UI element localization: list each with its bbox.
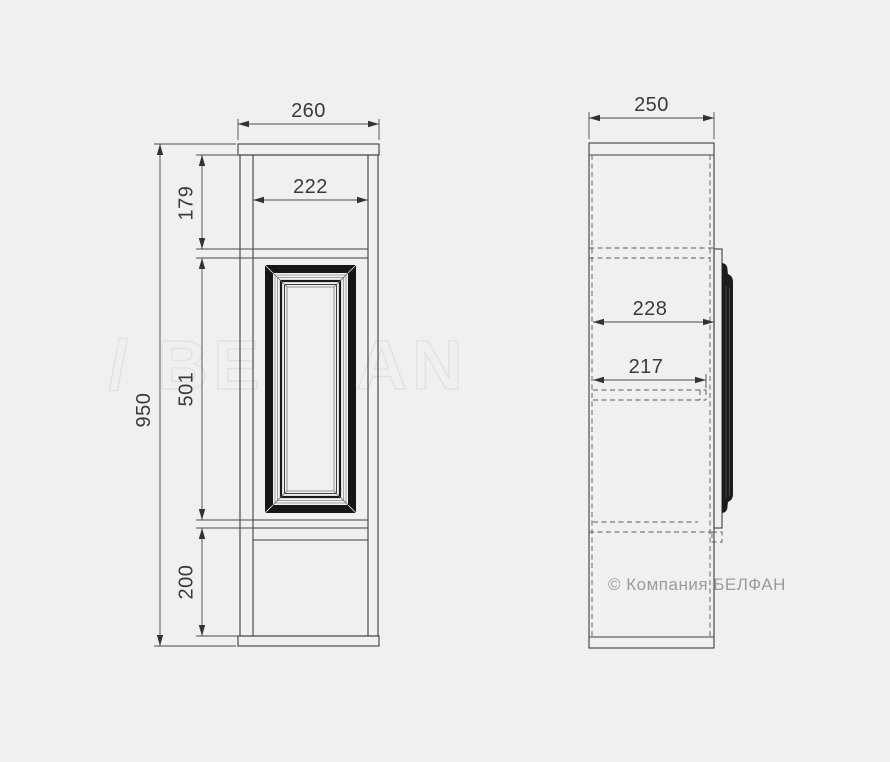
page: { "title": "furniture technical drawing"… (0, 0, 890, 762)
dim-shelf-depth: 217 (629, 356, 664, 378)
dim-interior-depth: 228 (633, 298, 668, 320)
side-door-molding-profile (722, 263, 733, 513)
dim-overall-depth: 250 (634, 94, 669, 116)
front-door-molding (265, 265, 356, 513)
dim-base-height: 200 (176, 565, 198, 600)
technical-drawing: / BELFAN (0, 0, 890, 762)
dim-door-height: 501 (176, 372, 198, 407)
dim-interior-width: 222 (293, 176, 328, 198)
dim-overall-width: 260 (291, 100, 326, 122)
dim-overall-height: 950 (133, 393, 155, 428)
copyright-text: © Компания БЕЛФАН (608, 575, 786, 594)
dim-top-section-height: 179 (176, 186, 198, 221)
